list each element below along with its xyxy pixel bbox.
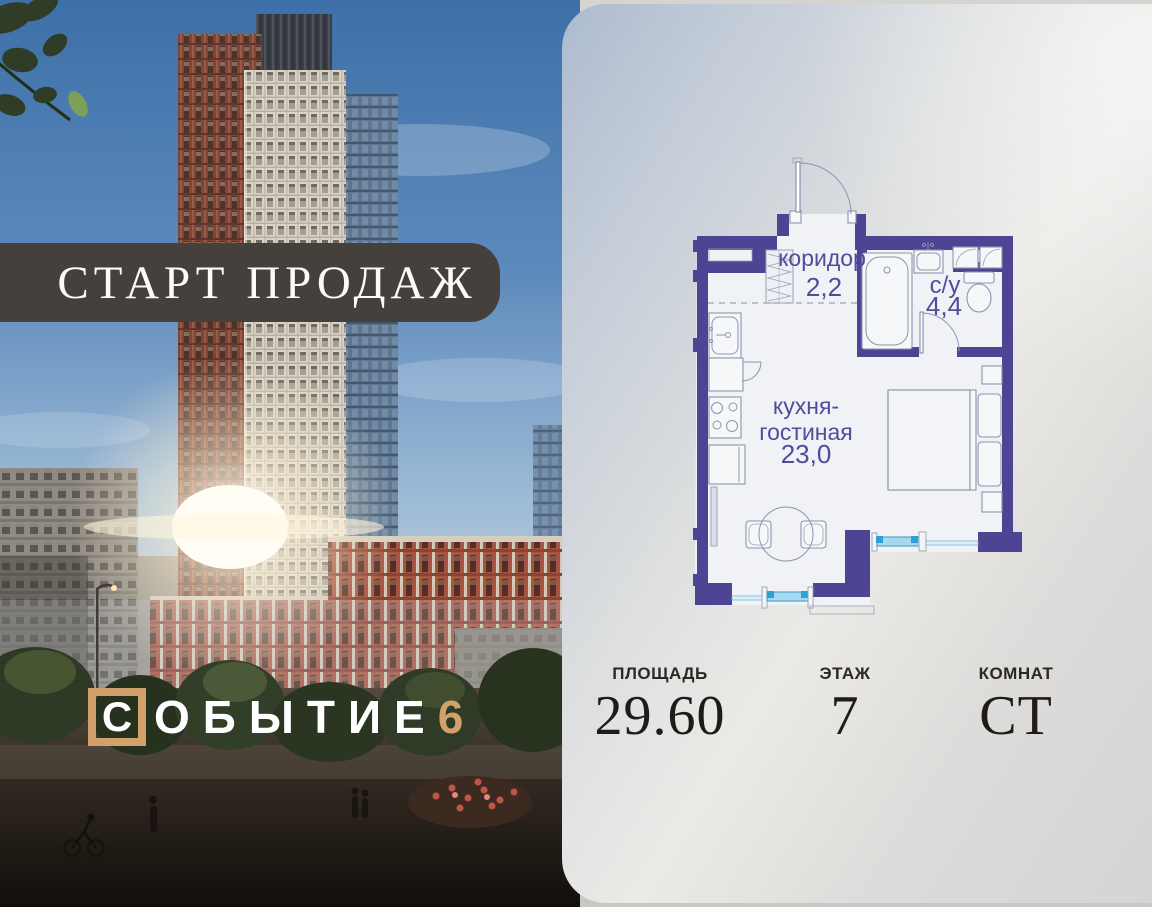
apartment-card[interactable]: коридор 2,2 с/у 4,4 кухня- гостиная 23,0… bbox=[562, 4, 1152, 903]
start-of-sales-banner: СТАРТ ПРОДАЖ bbox=[0, 243, 500, 322]
flower-bed bbox=[408, 776, 532, 828]
bathtub bbox=[862, 253, 912, 349]
building-photo-illustration bbox=[0, 0, 580, 907]
stat-area: ПЛОЩАДЬ 29.60 bbox=[570, 664, 750, 744]
entrance-door bbox=[790, 158, 856, 223]
stat-rooms-value: СТ bbox=[926, 688, 1106, 744]
logo-boxed-letter: С bbox=[102, 696, 132, 738]
logo-letters: ОБЫТИЕ bbox=[154, 694, 438, 740]
promo-card: СТАРТ ПРОДАЖ С ОБЫТИЕ 6 bbox=[0, 0, 1152, 907]
stat-rooms: КОМНАТ СТ bbox=[926, 664, 1106, 744]
kitchen-sink bbox=[709, 313, 741, 358]
room-area-corridor: 2,2 bbox=[806, 272, 842, 302]
pillow bbox=[978, 394, 1001, 437]
pillow bbox=[978, 442, 1001, 486]
stat-area-value: 29.60 bbox=[570, 688, 750, 744]
chair-left bbox=[746, 521, 771, 548]
balcony-outline bbox=[810, 606, 874, 614]
stat-floor-value: 7 bbox=[755, 688, 935, 744]
headboard bbox=[970, 390, 976, 490]
toilet bbox=[964, 272, 994, 312]
stat-area-label: ПЛОЩАДЬ bbox=[570, 664, 750, 684]
stat-rooms-label: КОМНАТ bbox=[926, 664, 1106, 684]
floor-plan: коридор 2,2 с/у 4,4 кухня- гостиная 23,0 bbox=[660, 150, 1060, 630]
fridge bbox=[709, 445, 745, 484]
chair-right bbox=[801, 521, 826, 548]
nightstand-top bbox=[982, 366, 1002, 384]
stat-floor-label: ЭТАЖ bbox=[755, 664, 935, 684]
room-area-bathroom: 4,4 bbox=[926, 291, 962, 321]
developer-logo: С ОБЫТИЕ 6 bbox=[88, 688, 463, 746]
banner-label: СТАРТ ПРОДАЖ bbox=[57, 256, 476, 310]
room-label-kitchen-line1: кухня- bbox=[773, 393, 839, 419]
stove bbox=[709, 397, 741, 438]
washer-cabinets bbox=[953, 247, 1002, 268]
stat-floor: ЭТАЖ 7 bbox=[755, 664, 935, 744]
building-photo bbox=[0, 0, 580, 907]
logo-letter-box: С bbox=[88, 688, 146, 746]
tv bbox=[711, 487, 717, 546]
room-label-corridor: коридор bbox=[778, 245, 866, 271]
logo-number: 6 bbox=[438, 694, 464, 740]
nightstand-bottom bbox=[982, 492, 1002, 512]
room-area-kitchen: 23,0 bbox=[781, 439, 832, 469]
